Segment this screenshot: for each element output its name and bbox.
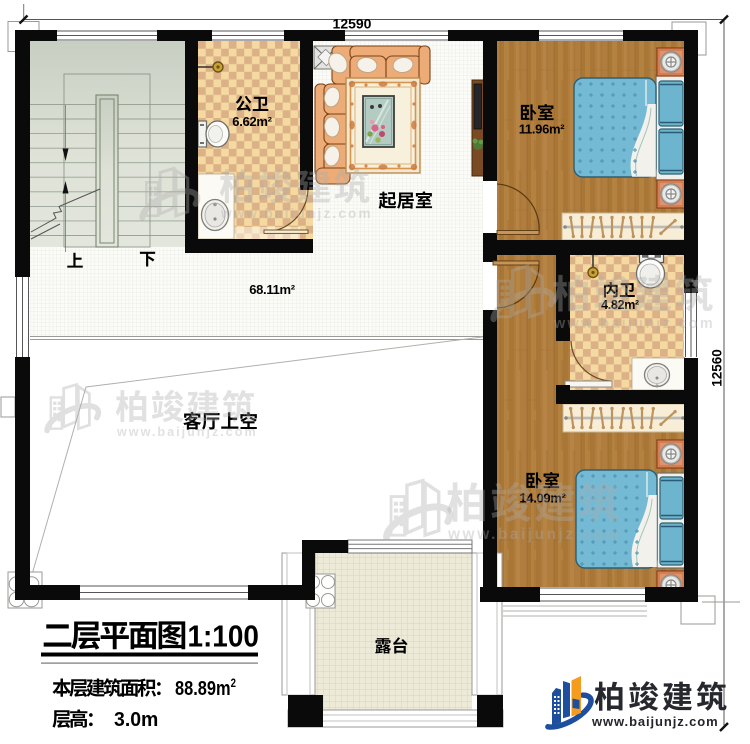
- svg-text:www.baijunjz.com: www.baijunjz.com: [447, 526, 622, 543]
- svg-text:68.11m²: 68.11m²: [249, 282, 296, 297]
- svg-text:www.baijunjz.com: www.baijunjz.com: [116, 425, 258, 439]
- svg-text:www.baijunjz.com: www.baijunjz.com: [591, 714, 719, 729]
- svg-text:www.baijunjz.com: www.baijunjz.com: [553, 316, 715, 332]
- svg-text:3.0m: 3.0m: [114, 709, 158, 732]
- svg-text:12560: 12560: [710, 349, 725, 387]
- svg-text:6.62m²: 6.62m²: [232, 114, 272, 129]
- svg-text:11.96m²: 11.96m²: [519, 122, 566, 137]
- svg-text:1:100: 1:100: [188, 619, 259, 654]
- svg-text:www.baijunjz.com: www.baijunjz.com: [220, 206, 373, 221]
- svg-text:88.89m2: 88.89m2: [175, 676, 236, 699]
- svg-text:12590: 12590: [333, 16, 372, 32]
